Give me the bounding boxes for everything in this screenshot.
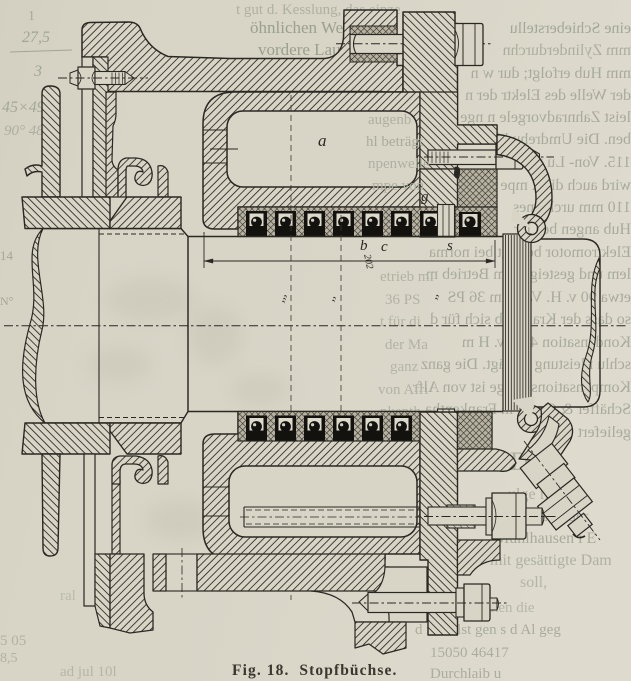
- svg-text:von Afri: von Afri: [378, 382, 428, 398]
- svg-text:eine Schieberstellu: eine Schieberstellu: [510, 20, 631, 37]
- svg-text:a: a: [318, 131, 327, 150]
- svg-text:hl beträgt: hl beträgt: [366, 134, 424, 150]
- svg-text:npenwelle: npenwelle: [368, 156, 430, 172]
- svg-text:Kondensation 4 - 5 v. H m: Kondensation 4 - 5 v. H m: [461, 334, 631, 351]
- svg-text:s: s: [447, 238, 453, 254]
- svg-text:8,5: 8,5: [0, 651, 18, 666]
- svg-text:110 mm urchn nes: 110 mm urchn nes: [513, 199, 631, 216]
- svg-text:soll,: soll,: [520, 574, 547, 591]
- svg-text:ganz: ganz: [390, 359, 419, 375]
- svg-text:wird auch die k mpe: wird auch die k mpe: [500, 177, 631, 194]
- svg-text:Durchlaib u: Durchlaib u: [430, 666, 502, 681]
- svg-text:36 PS: 36 PS: [385, 292, 420, 308]
- svg-text:27,5: 27,5: [22, 29, 50, 46]
- svg-text:etwa 90 v. H. Vakuum 36: etwa 90 v. H. Vakuum 36 PS: [447, 289, 631, 306]
- svg-text:mm Hub erfolgt; dur w n: mm Hub erfolgt; dur w n: [471, 65, 631, 82]
- svg-text:5 05: 5 05: [0, 633, 26, 649]
- svg-text:mpe von: mpe von: [372, 178, 425, 194]
- svg-text:geliefert: geliefert: [577, 424, 631, 441]
- svg-text:leist Zahnradvorgele n nge: leist Zahnradvorgele n nge: [460, 109, 631, 126]
- svg-text:3: 3: [33, 63, 42, 80]
- svg-text:c: c: [381, 239, 388, 255]
- svg-text:b: b: [360, 238, 368, 254]
- svg-text:ral: ral: [60, 588, 76, 604]
- svg-text:mit gesättigte Dam: mit gesättigte Dam: [490, 552, 612, 569]
- svg-text:mm Zylinderdurchn: mm Zylinderdurchn: [503, 42, 631, 59]
- svg-text:Fig. 18. Stopfbüchse.: Fig. 18. Stopfbüchse.: [232, 662, 397, 679]
- svg-text:1: 1: [28, 9, 35, 24]
- svg-text:N°: N°: [0, 294, 14, 308]
- svg-text:etrieb mi: etrieb mi: [380, 269, 434, 285]
- svg-text:t für di: t für di: [380, 314, 421, 330]
- svg-text:15050 46417: 15050 46417: [430, 645, 509, 661]
- svg-text:augenb: augenb: [368, 112, 411, 128]
- svg-text:45×49: 45×49: [2, 99, 45, 116]
- svg-text:ad jul 10l: ad jul 10l: [60, 664, 117, 680]
- svg-text:g: g: [421, 189, 429, 205]
- svg-text:der Welle des Elektr der: der Welle des Elektr der n: [465, 87, 631, 104]
- svg-text:der Ma: der Ma: [385, 337, 428, 353]
- svg-text:14: 14: [0, 248, 14, 263]
